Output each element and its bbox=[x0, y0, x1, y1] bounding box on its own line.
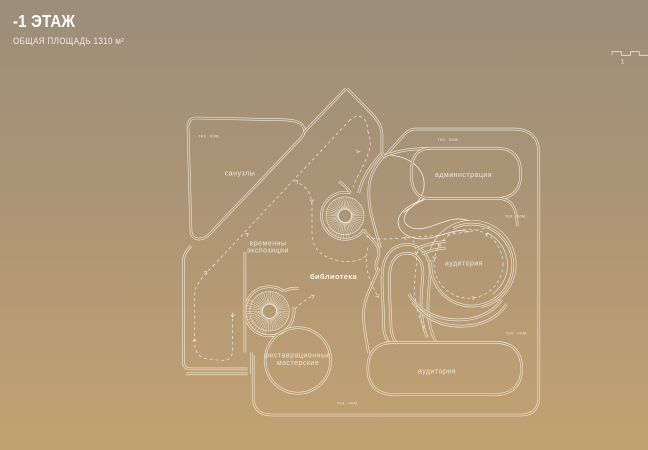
svg-text:мастерские: мастерские bbox=[277, 360, 320, 367]
svg-text:аудитория: аудитория bbox=[418, 369, 456, 376]
svg-text:реставрационные: реставрационные bbox=[265, 353, 331, 360]
svg-text:аудитория: аудитория bbox=[445, 261, 483, 268]
svg-text:тех. пом.: тех. пом. bbox=[337, 400, 359, 405]
svg-text:тех. пом.: тех. пом. bbox=[198, 134, 220, 139]
svg-text:тех. пом.: тех. пом. bbox=[506, 331, 528, 336]
svg-text:тех. пом.: тех. пом. bbox=[505, 214, 527, 219]
svg-text:санузлы: санузлы bbox=[225, 171, 256, 178]
svg-text:тех. пом.: тех. пом. bbox=[437, 137, 459, 142]
svg-text:администрация: администрация bbox=[435, 172, 492, 179]
svg-text:временны: временны bbox=[250, 241, 287, 248]
svg-text:библиотека: библиотека bbox=[310, 272, 358, 281]
svg-text:экспозиции: экспозиции bbox=[247, 248, 289, 255]
svg-text:1: 1 bbox=[621, 59, 625, 66]
